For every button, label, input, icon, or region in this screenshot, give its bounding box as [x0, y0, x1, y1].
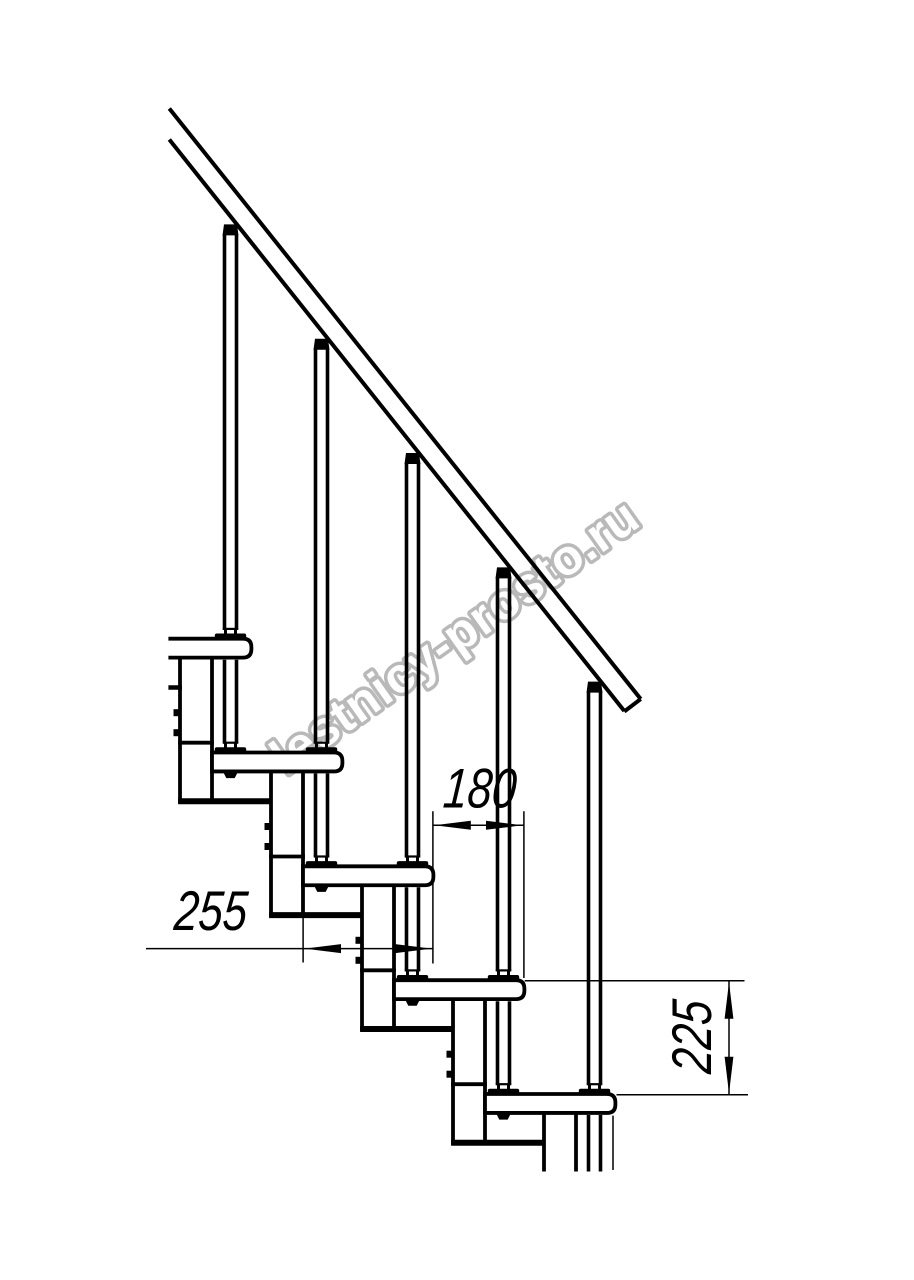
- svg-text:255: 255: [171, 879, 251, 942]
- svg-text:225: 225: [660, 996, 723, 1076]
- svg-text:180: 180: [441, 756, 519, 819]
